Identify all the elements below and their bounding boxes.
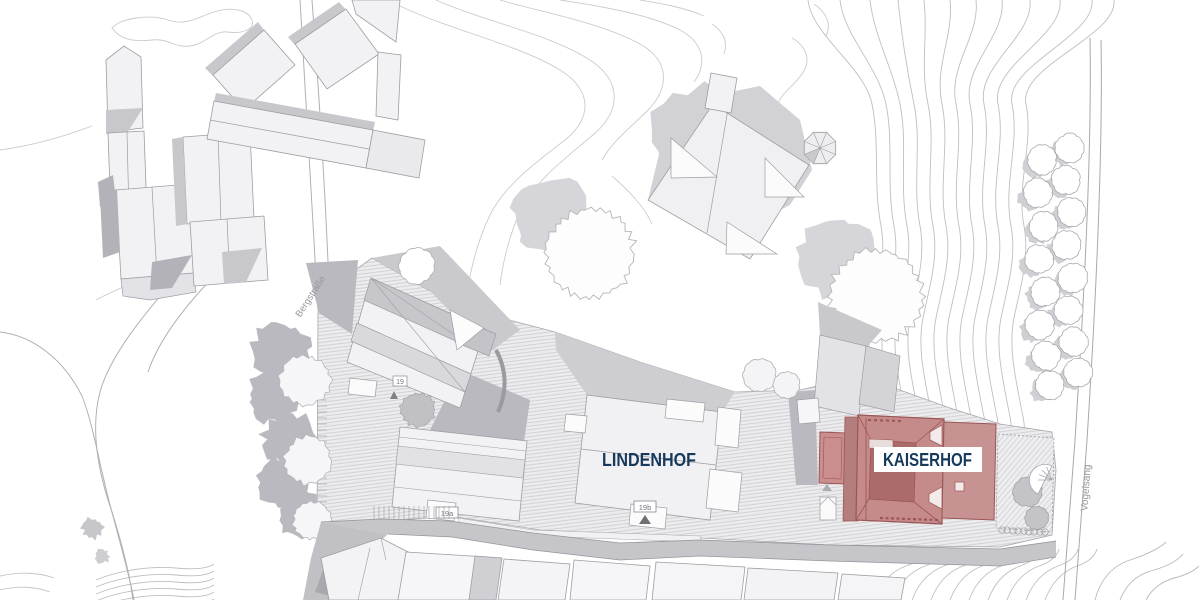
svg-text:19a: 19a: [441, 509, 454, 518]
svg-text:19: 19: [396, 379, 404, 386]
svg-text:LINDENHOF: LINDENHOF: [602, 450, 696, 470]
svg-text:19b: 19b: [639, 503, 652, 512]
svg-text:KAISERHOF: KAISERHOF: [883, 450, 972, 470]
